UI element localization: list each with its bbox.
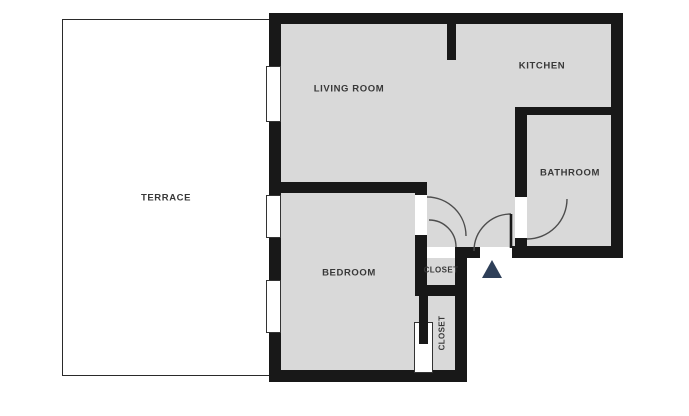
- wall-bathroom-top: [515, 107, 617, 115]
- entry-door-opening: [480, 247, 512, 258]
- wall-right: [611, 13, 623, 258]
- bedroom-window-lower: [266, 280, 281, 333]
- wall-kitchen-stub: [447, 24, 456, 60]
- wall-bathroom-bottom: [512, 246, 623, 258]
- wall-hall-bottom-stub: [455, 247, 480, 258]
- floor-hallway: [421, 186, 521, 252]
- bathroom-door-opening: [515, 197, 527, 238]
- bedroom-window-upper: [266, 195, 281, 238]
- floor-bedroom: [275, 186, 421, 376]
- floor-bathroom: [521, 111, 617, 252]
- kitchen-label: KITCHEN: [519, 61, 565, 72]
- closet-sliding-door-leaf: [419, 296, 428, 344]
- wall-top: [269, 13, 623, 24]
- living-room-label: LIVING ROOM: [314, 84, 384, 95]
- floor-living-kitchen: [275, 18, 617, 113]
- terrace-label: TERRACE: [141, 193, 191, 204]
- wall-bathroom-left-upper: [515, 107, 527, 197]
- entrance-triangle-marker: [482, 260, 502, 278]
- closet-top-label: CLOSET: [424, 266, 459, 275]
- closet-door-opening: [427, 247, 455, 258]
- wall-bedroom-bottom: [269, 370, 467, 382]
- living-room-window: [266, 66, 281, 122]
- wall-bathroom-left-lower: [515, 238, 527, 258]
- closet-bottom-label: CLOSET: [438, 316, 447, 351]
- wall-bedroom-right-upper: [415, 182, 427, 195]
- floor-plan: TERRACE LIVING ROOM KITCHEN BATHROOM BED…: [0, 0, 689, 416]
- wall-bedroom-top: [269, 182, 427, 193]
- floor-mid-band: [275, 110, 521, 190]
- bedroom-label: BEDROOM: [322, 268, 376, 279]
- bedroom-door-opening: [415, 195, 427, 235]
- bathroom-label: BATHROOM: [540, 168, 600, 179]
